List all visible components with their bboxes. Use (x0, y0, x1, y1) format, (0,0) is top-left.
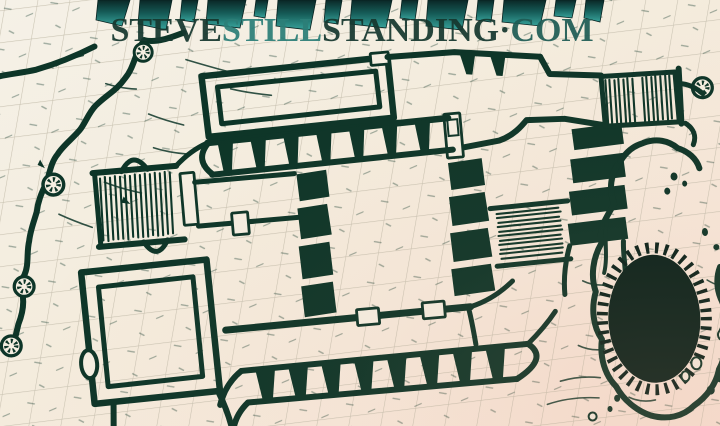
dungeon-map-canvas: STEVESTILLSTANDING·COM (0, 0, 720, 426)
map-photo: STEVESTILLSTANDING·COM (0, 0, 720, 426)
photo-vignette (0, 0, 720, 426)
